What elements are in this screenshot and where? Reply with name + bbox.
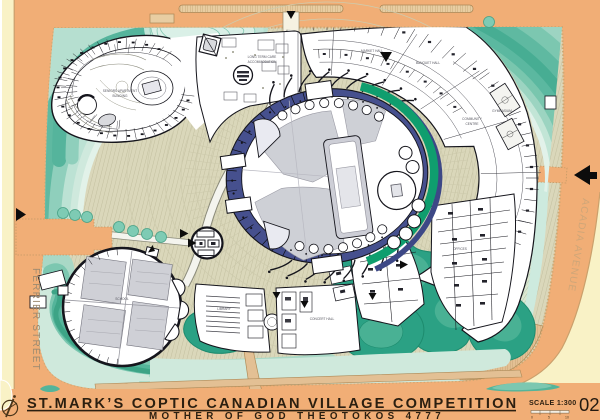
svg-text:BANQUET HALL: BANQUET HALL <box>416 61 440 65</box>
svg-text:LONG TERM CARE: LONG TERM CARE <box>248 55 277 59</box>
svg-text:LIBRARY: LIBRARY <box>217 307 231 311</box>
svg-text:CENTRE: CENTRE <box>465 122 478 126</box>
svg-text:BUILDING: BUILDING <box>112 94 128 98</box>
svg-text:GYMNASIUM: GYMNASIUM <box>492 109 512 113</box>
svg-text:ST.MARK’S COPTIC CANADIAN VILL: ST.MARK’S COPTIC CANADIAN VILLAGE COMPET… <box>27 396 518 412</box>
svg-text:SCHOOL: SCHOOL <box>115 297 129 301</box>
svg-text:MOTHER OF GOD THEOTOKOS 4777: MOTHER OF GOD THEOTOKOS 4777 <box>149 411 445 420</box>
svg-text:02: 02 <box>579 394 600 415</box>
svg-text:10: 10 <box>565 416 569 420</box>
svg-text:CONCERT HALL: CONCERT HALL <box>310 317 335 321</box>
svg-text:5: 5 <box>548 416 550 420</box>
svg-text:FERRIER STREET: FERRIER STREET <box>30 268 41 371</box>
svg-text:COMMUNITY: COMMUNITY <box>462 117 483 121</box>
svg-text:ACCOMMODATION: ACCOMMODATION <box>248 60 278 64</box>
svg-text:MARKET HALL: MARKET HALL <box>361 49 383 53</box>
svg-text:SENIORS APARTMENT: SENIORS APARTMENT <box>103 89 137 93</box>
svg-text:SCALE 1:300: SCALE 1:300 <box>529 399 576 407</box>
svg-text:0: 0 <box>531 416 533 420</box>
svg-text:OFFICES: OFFICES <box>453 247 467 251</box>
